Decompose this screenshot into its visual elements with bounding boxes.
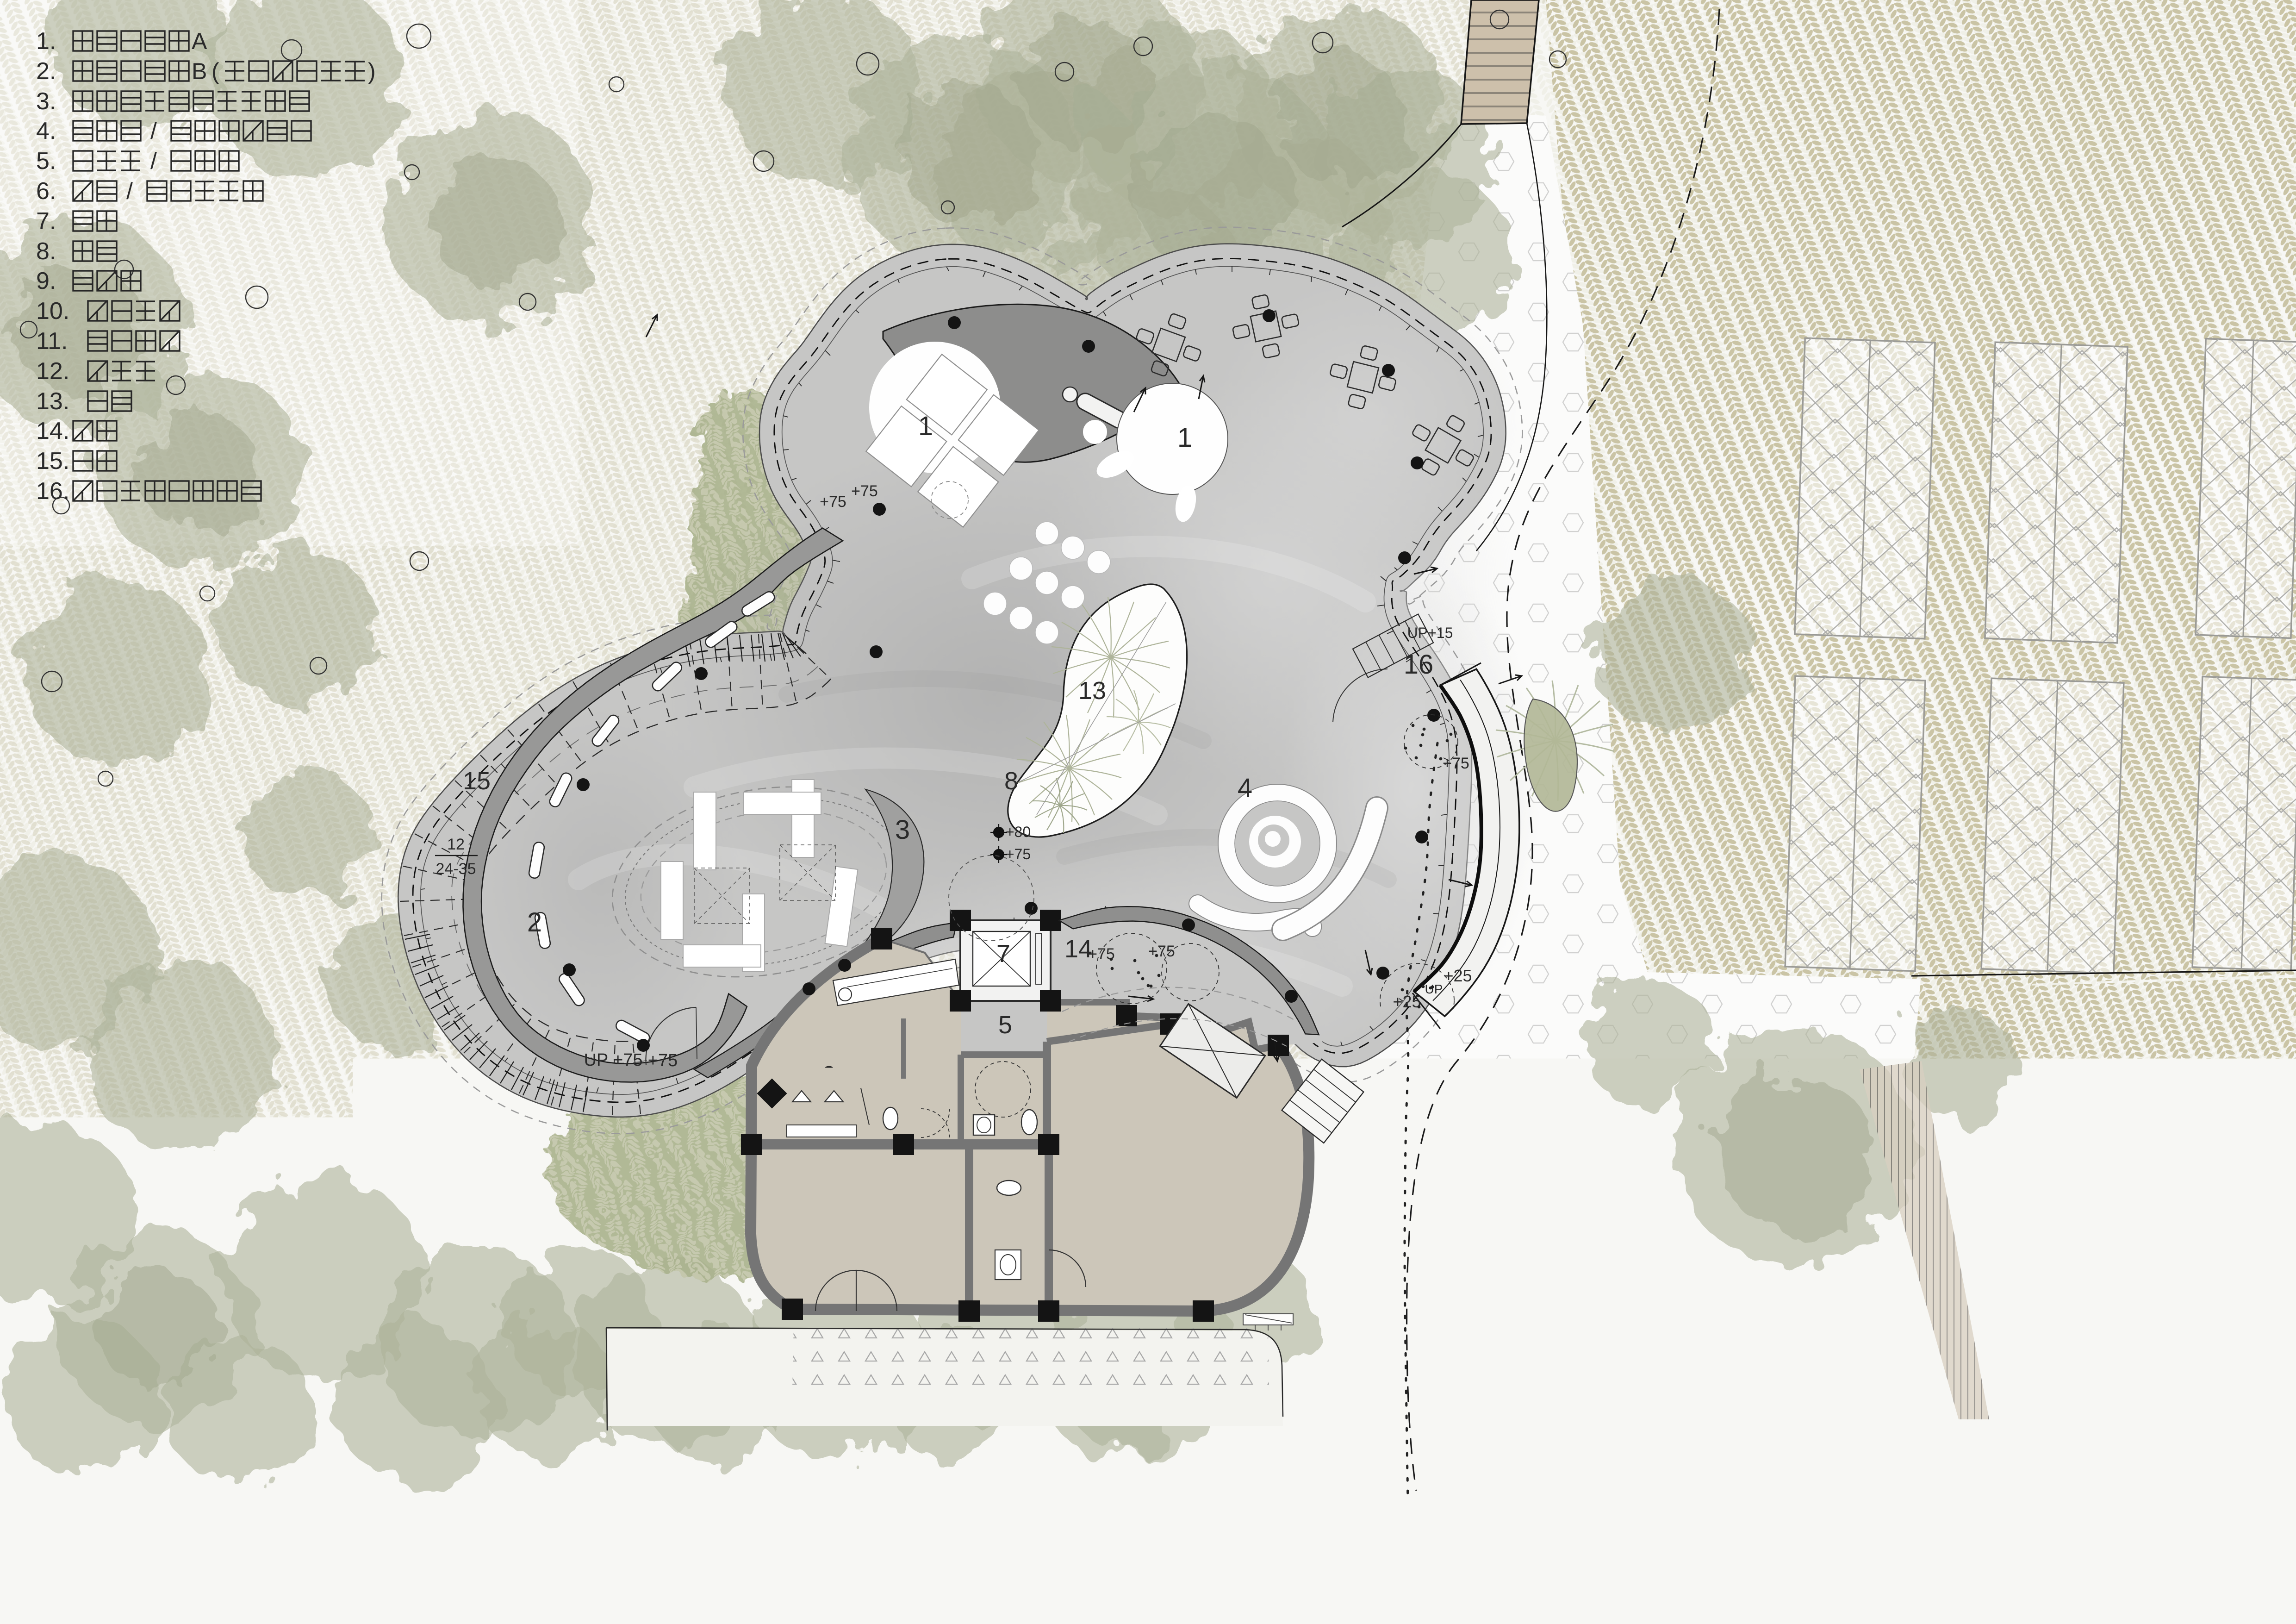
svg-text:UP+15: UP+15 — [1319, 1051, 1365, 1068]
svg-text:15.: 15. — [36, 448, 69, 475]
svg-text:2.: 2. — [36, 58, 56, 85]
svg-text:2.35: 2.35 — [801, 1503, 852, 1537]
svg-text:UP: UP — [1425, 982, 1443, 996]
svg-text:10.: 10. — [36, 298, 69, 325]
svg-text:): ) — [368, 58, 376, 84]
svg-text:N: N — [1642, 1494, 1655, 1514]
svg-text:6.: 6. — [36, 178, 56, 205]
svg-text:+0: +0 — [1369, 1492, 1387, 1509]
svg-text:13.: 13. — [36, 388, 69, 415]
svg-text:5 (m.): 5 (m.) — [1931, 1480, 1979, 1500]
svg-text:+15: +15 — [925, 1169, 952, 1187]
svg-text:/: / — [126, 178, 133, 204]
svg-text:(: ( — [212, 58, 219, 84]
svg-text:A: A — [192, 28, 207, 54]
svg-text:3: 3 — [895, 815, 910, 845]
svg-text:+75: +75 — [820, 493, 846, 511]
svg-text:4: 4 — [1238, 773, 1252, 803]
svg-text:+75: +75 — [851, 482, 878, 500]
svg-text:+75: +75 — [917, 1070, 944, 1087]
svg-text:16.: 16. — [36, 478, 69, 505]
svg-text:11: 11 — [1190, 1133, 1216, 1161]
svg-text:8: 8 — [1004, 767, 1018, 795]
svg-text:5: 5 — [998, 1011, 1012, 1039]
svg-text:+0: +0 — [1369, 1419, 1387, 1437]
svg-text:5.: 5. — [36, 148, 56, 175]
svg-text:+0: +0 — [1369, 1403, 1387, 1420]
svg-text:+15: +15 — [816, 1169, 843, 1187]
svg-text:9.: 9. — [36, 268, 56, 294]
svg-text:7: 7 — [996, 940, 1010, 968]
svg-text:+75: +75 — [1006, 846, 1031, 862]
svg-text:UP+15: UP+15 — [1407, 625, 1453, 641]
svg-text:+15: +15 — [1236, 1193, 1263, 1211]
svg-text:+75: +75 — [876, 1070, 902, 1087]
svg-text:B: B — [192, 58, 207, 84]
svg-text:14.: 14. — [36, 418, 69, 444]
svg-text:15: 15 — [463, 767, 491, 795]
svg-text:13: 13 — [1078, 677, 1106, 705]
svg-text:9: 9 — [855, 1190, 869, 1218]
svg-text:1: 1 — [918, 411, 933, 441]
svg-text:+75: +75 — [648, 1051, 678, 1070]
svg-text:+10: +10 — [1057, 1189, 1083, 1206]
svg-text:1: 1 — [1177, 423, 1192, 453]
svg-text:+80: +80 — [1006, 824, 1031, 840]
svg-text:+25: +25 — [1444, 966, 1472, 985]
svg-text:0: 0 — [1718, 1480, 1728, 1500]
svg-text:4.: 4. — [36, 118, 56, 144]
svg-text:3: 3 — [1845, 1480, 1855, 1500]
svg-text:7.: 7. — [36, 208, 56, 235]
svg-text:2: 2 — [527, 907, 542, 937]
svg-text:+75: +75 — [966, 1070, 993, 1087]
svg-text:1.: 1. — [36, 28, 56, 55]
svg-text:16: 16 — [1404, 650, 1434, 680]
svg-text:11.: 11. — [36, 328, 68, 355]
svg-text:12: 12 — [447, 836, 465, 853]
svg-text:8.: 8. — [36, 238, 56, 265]
svg-text:/: / — [150, 148, 157, 174]
svg-text:+0: +0 — [1369, 1529, 1387, 1547]
svg-text:3.: 3. — [36, 88, 56, 115]
svg-text:UP +75: UP +75 — [584, 1050, 642, 1070]
svg-text:6: 6 — [1001, 1074, 1014, 1100]
svg-text:24-35: 24-35 — [436, 860, 476, 878]
svg-text:6: 6 — [821, 1061, 835, 1089]
svg-text:+25: +25 — [1393, 992, 1421, 1011]
svg-text:/: / — [150, 118, 157, 144]
svg-text:12: 12 — [996, 1153, 1022, 1179]
svg-text:2: 2 — [1802, 1480, 1812, 1500]
svg-text:4: 4 — [1885, 1480, 1895, 1500]
svg-text:12.: 12. — [36, 358, 69, 385]
